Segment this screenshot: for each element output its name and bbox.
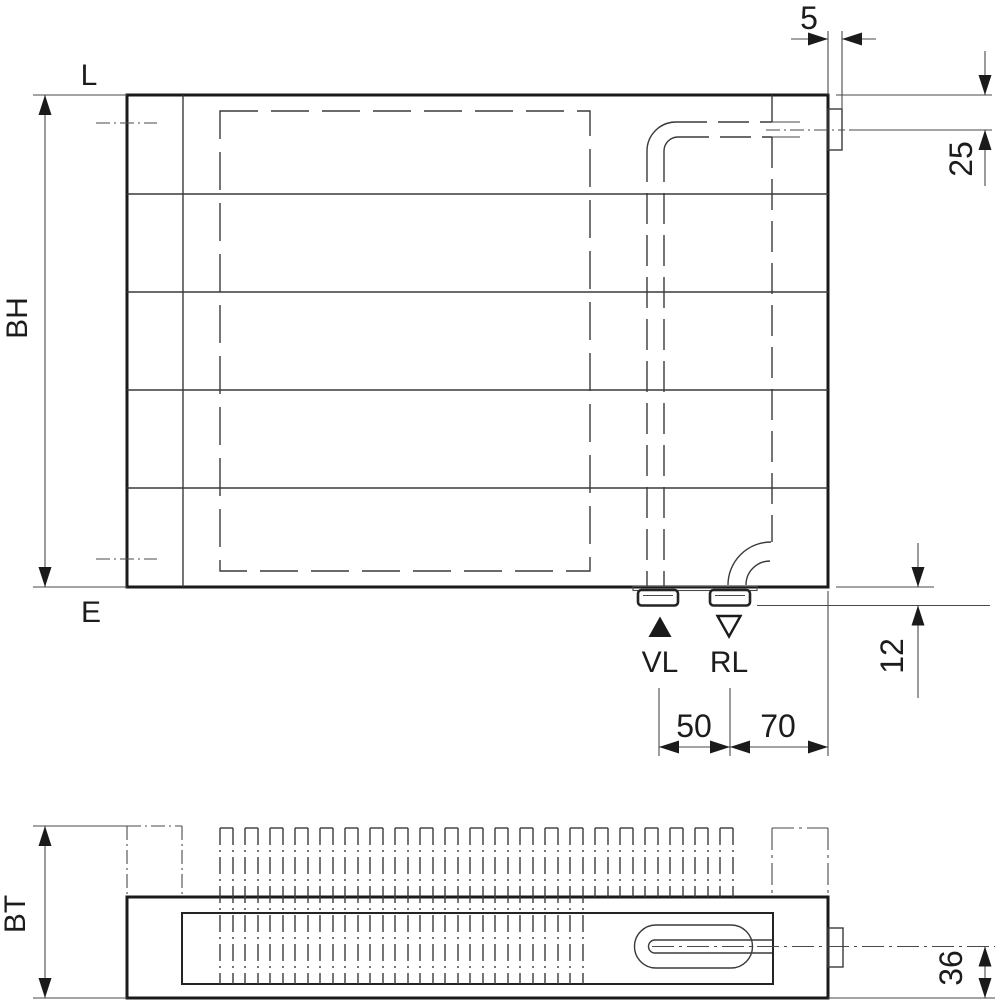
label-bottom-edge: E [81,596,101,629]
top-right-connection [766,109,845,150]
fins [220,828,733,984]
dim-vl-rl-spacing-value: 50 [676,708,712,744]
dim-top-offset-value: 25 [943,141,979,177]
radiator-outline [96,95,828,587]
arrowhead-up-icon [39,95,52,115]
arrowhead-down-icon [39,978,52,998]
supply-elbow-outer [647,122,676,151]
arrowhead-up-icon [912,606,925,626]
supply-elbow-inner [664,137,678,151]
dim-36: 36 [828,947,995,999]
dim-rl-edge-spacing-value: 70 [760,708,796,744]
dim-12: 12 [757,543,990,698]
bottom-view: BT 36 [0,826,995,998]
arrowhead-left-icon [730,741,750,754]
radiator-body-outline [127,95,828,587]
bottom-connections [633,587,757,606]
dim-tab-width-value: 5 [800,0,818,36]
dim-depth-label: BT [0,895,32,933]
dim-pipe-center-value: 36 [933,950,969,986]
dim-height-label: BH [1,297,34,339]
arrowhead-right-icon [808,741,828,754]
hidden-inner-panel [220,111,590,571]
drawing-canvas: VL RL L E BH 5 [0,0,1000,1000]
arrowhead-down-icon [979,75,992,95]
dim-bottom-offset-value: 12 [874,638,910,674]
dim-5: 5 [791,0,876,109]
label-top-edge: L [81,59,98,92]
arrowhead-down-icon [912,567,925,587]
return-elbow-outer [728,542,771,585]
front-view: VL RL L E BH 5 [1,0,992,756]
dim-bh: L E BH [1,59,127,629]
arrowhead-down-icon [39,567,52,587]
arrowhead-right-icon [710,741,730,754]
arrowhead-left-icon [842,33,862,46]
return-elbow-inner [746,561,770,585]
return-nozzle [710,590,750,606]
supply-nozzle [638,590,678,606]
dim-bt: BT [0,826,127,998]
arrowhead-up-icon [39,826,52,846]
supply-label: VL [642,646,679,679]
radiator-technical-drawing: VL RL L E BH 5 [0,0,1000,1000]
hidden-piping [647,95,800,586]
side-connection-tab [828,928,843,967]
phantom-lines [127,826,828,897]
flow-markers: VL RL [642,616,749,679]
arrowhead-up-icon [979,947,992,967]
arrowhead-down-icon [979,978,992,998]
dim-25: 25 [836,51,992,186]
return-label: RL [710,646,748,679]
arrowhead-up-icon [979,130,992,150]
return-flow-arrow-icon [718,616,741,637]
body-outline [127,897,828,998]
supply-flow-arrow-icon [649,617,672,638]
